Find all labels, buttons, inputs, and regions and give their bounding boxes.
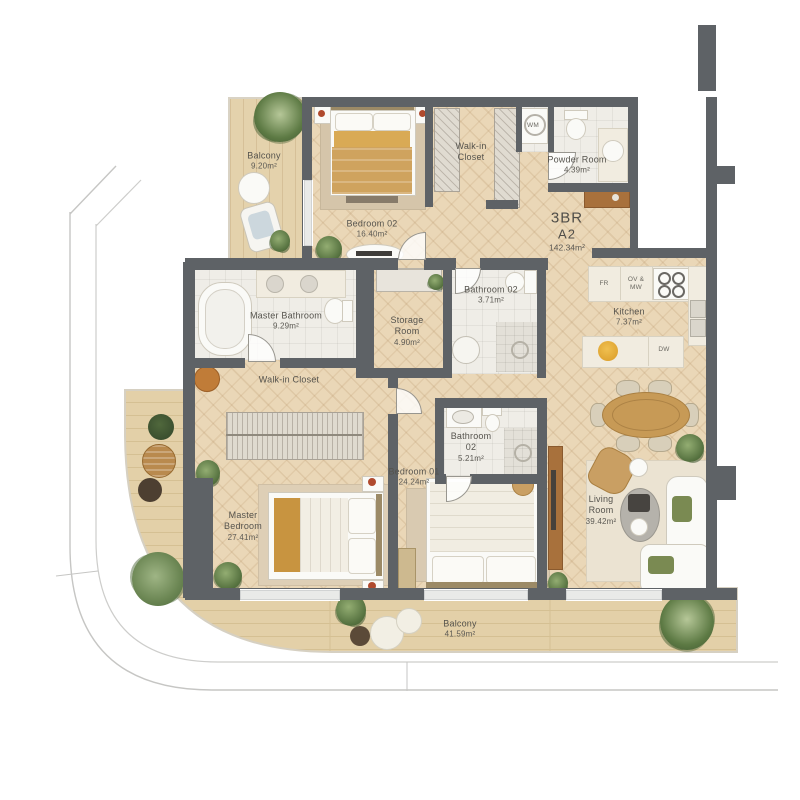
wall-bedroom01-left-stub <box>388 378 398 388</box>
plant-hall-icon <box>428 274 444 290</box>
bedroom01-cabinet <box>398 548 416 590</box>
storage-name: Storage Room <box>384 315 430 338</box>
burner-3 <box>658 285 671 298</box>
wrap-balcony-chair <box>142 444 176 478</box>
room-label-walkin-mid: Walk-in Closet <box>241 374 337 385</box>
bedroom02-tv <box>356 251 392 256</box>
label-fridge: FR <box>592 280 616 288</box>
unit-code: A2 <box>549 227 585 242</box>
balcony-top-area: 9.20m² <box>251 162 277 172</box>
master-pillow-bottom <box>348 538 376 574</box>
coffee-table-tray <box>628 494 650 512</box>
room-label-balcony-bottom: Balcony 41.59m² <box>428 618 492 639</box>
wall-storage-bottom <box>356 368 450 378</box>
wm-text: WM <box>527 122 539 130</box>
hall-console <box>584 191 630 208</box>
unit-area: 142.34m² <box>549 243 585 253</box>
hall-console-decor <box>612 194 619 201</box>
slider-living-balcony <box>566 589 662 601</box>
master-headboard <box>376 494 382 576</box>
floorplan-canvas: Balcony 9.20m² Bedroom 02 16.40m² Walk-i… <box>0 0 800 800</box>
room-label-balcony-top: Balcony 9.20m² <box>241 150 287 171</box>
room-label-storage: Storage Room 4.90m² <box>384 315 430 348</box>
wall-right-nub-top <box>717 166 735 184</box>
master-toilet-tank <box>342 300 353 322</box>
master-gold-runner <box>274 498 300 572</box>
bath02-lower-toilet-bowl <box>485 414 500 432</box>
wall-hall-right <box>630 192 638 248</box>
master-bedroom-area: 27.41m² <box>228 532 259 542</box>
bedroom02-lamp-left <box>318 110 325 117</box>
bathroom02-lower-name: Bathroom 02 <box>448 431 494 454</box>
powder-toilet-bowl <box>566 118 586 140</box>
wall-storage-bath02 <box>443 262 452 378</box>
balcony-bottom-area: 41.59m² <box>445 630 476 640</box>
wall-bedroom02-walkin <box>425 107 433 207</box>
wall-left-pier <box>183 478 213 598</box>
bedroom01-pillow-right <box>486 556 536 584</box>
wall-bedroom01-living <box>537 398 547 598</box>
room-label-powder: Powder Room 4.39m² <box>535 154 619 175</box>
master-lamp-top <box>368 478 376 486</box>
master-sink-right <box>300 275 318 293</box>
powder-name: Powder Room <box>547 154 606 165</box>
wall-right-exterior <box>706 97 717 600</box>
plant-master-icon <box>214 562 242 590</box>
bathroom02-upper-name: Bathroom 02 <box>464 284 518 295</box>
balcony-bottom-name: Balcony <box>443 618 476 629</box>
living-side-table <box>629 458 648 477</box>
wall-powder-right <box>628 97 638 192</box>
bedroom01-name: Bedroom 01 <box>388 466 439 477</box>
wrap-balcony-plant-pot <box>148 414 174 440</box>
bedroom02-area: 16.40m² <box>357 230 388 240</box>
bath02-lower-showerhead <box>514 444 532 462</box>
fern-wrap-balcony-icon <box>132 552 184 606</box>
street-cap-outer <box>70 166 116 214</box>
burner-2 <box>672 272 685 285</box>
burner-4 <box>672 285 685 298</box>
balcony-pouf-2 <box>396 608 422 634</box>
master-bathroom-area: 9.29m² <box>273 322 299 332</box>
master-sink-left <box>266 275 284 293</box>
slider-bedroom01-balcony <box>424 589 528 601</box>
wall-bedroom01-left <box>388 414 398 588</box>
palm-balcony-top-icon <box>254 92 306 142</box>
bedroom02-gold-throw <box>334 131 410 147</box>
room-label-walkin-top: Walk-in Closet <box>448 141 494 164</box>
bathroom02-upper-area: 3.71m² <box>478 296 504 306</box>
living-name: Living Room <box>580 494 622 517</box>
bedroom02-blanket <box>332 147 412 194</box>
fridge-text: FR <box>599 280 608 288</box>
bedroom02-bench <box>346 196 398 203</box>
plant-balcony-top-icon <box>270 230 290 252</box>
plant-dining-icon <box>676 434 704 462</box>
dining-table-grain <box>612 399 680 431</box>
bath02-upper-showerhead <box>511 341 529 359</box>
coffee-table-plate <box>630 518 648 536</box>
wall-bath02-upper-right <box>537 258 546 378</box>
kitchen-appliance-1 <box>690 300 706 318</box>
sofa-cushion-2 <box>648 556 674 574</box>
wall-kitchen-top <box>592 248 717 258</box>
room-label-kitchen: Kitchen 7.37m² <box>599 306 659 327</box>
bedroom02-name: Bedroom 02 <box>346 218 397 229</box>
balcony-top-table <box>238 172 270 204</box>
room-label-bathroom02-upper: Bathroom 02 3.71m² <box>451 284 531 305</box>
room-label-living: Living Room 39.42m² <box>580 494 622 527</box>
wall-top <box>302 97 638 107</box>
room-label-bedroom01: Bedroom 01 24.24m² <box>388 466 440 487</box>
bedroom02-pillow-left <box>335 113 373 131</box>
slider-master-balcony <box>240 589 340 601</box>
orange-pouf <box>194 366 220 392</box>
wall-masterbath-storage <box>356 262 374 368</box>
unit-type: 3BR <box>549 210 585 227</box>
living-area: 39.42m² <box>586 516 617 526</box>
balcony-top-name: Balcony <box>247 150 280 161</box>
bedroom01-area: 24.24m² <box>399 478 430 488</box>
bedroom01-pillow-left <box>432 556 484 584</box>
wall-bath02-lower-bottom-2 <box>470 474 546 484</box>
wall-walkin-wm <box>516 107 522 152</box>
wall-right-nub-mid <box>714 466 736 500</box>
room-label-master-bedroom: Master Bedroom 27.41m² <box>216 510 270 543</box>
wall-walkin-stub <box>486 200 518 209</box>
wall-powder-bottom <box>548 183 638 192</box>
walkin-mid-rail <box>226 434 362 436</box>
powder-area: 4.39m² <box>564 166 590 176</box>
wall-bath02-lower-top <box>435 398 546 408</box>
kitchen-name: Kitchen <box>613 306 644 317</box>
label-washing-machine: WM <box>523 122 543 130</box>
master-duvet <box>300 498 348 572</box>
wall-wm-powder <box>548 107 554 152</box>
kitchen-appliance-2 <box>690 319 706 337</box>
wrap-balcony-pouf <box>138 478 162 502</box>
fruit-bowl <box>598 341 618 361</box>
palm-balcony-bottom-icon <box>660 594 714 650</box>
island-divider <box>648 336 649 366</box>
walkin-mid-wardrobe <box>226 412 364 460</box>
bedroom02-pillow-right <box>373 113 411 131</box>
sofa-cushion-1 <box>672 496 692 522</box>
burner-1 <box>658 272 671 285</box>
label-dishwasher: DW <box>652 346 676 354</box>
kitchen-counter-divider-1 <box>620 266 621 300</box>
bathroom02-lower-area: 5.21m² <box>458 453 484 463</box>
balcony-pouf-dark <box>350 626 370 646</box>
storage-area: 4.90m² <box>394 337 420 347</box>
slider-bedroom02-balcony <box>303 180 313 246</box>
room-label-master-bathroom: Master Bathroom 9.29m² <box>231 310 341 331</box>
tv-screen <box>551 470 556 530</box>
unit-label: 3BR A2 142.34m² <box>549 210 585 253</box>
room-label-bedroom02: Bedroom 02 16.40m² <box>337 218 407 239</box>
wall-neighbor-top-right <box>698 25 716 91</box>
master-bathroom-name: Master Bathroom <box>250 310 322 321</box>
walkin-top-name: Walk-in Closet <box>448 141 494 164</box>
street-tick-left <box>56 571 98 576</box>
bath02-lower-sink <box>452 410 474 424</box>
walkin-mid-name: Walk-in Closet <box>259 374 319 385</box>
kitchen-area: 7.37m² <box>616 318 642 328</box>
wall-masterbath-bottom-right <box>280 358 374 368</box>
label-oven-microwave: OV & MW <box>623 276 649 292</box>
wall-masterbath-bottom-left <box>193 358 245 368</box>
bath02-upper-sink <box>452 336 480 364</box>
dishwasher-text: DW <box>658 346 669 354</box>
oven-microwave-text: OV & MW <box>623 276 649 292</box>
master-pillow-top <box>348 498 376 534</box>
room-label-bathroom02-lower: Bathroom 02 5.21m² <box>448 431 494 464</box>
master-bedroom-name: Master Bedroom <box>216 510 270 533</box>
street-cap-inner <box>96 180 141 226</box>
